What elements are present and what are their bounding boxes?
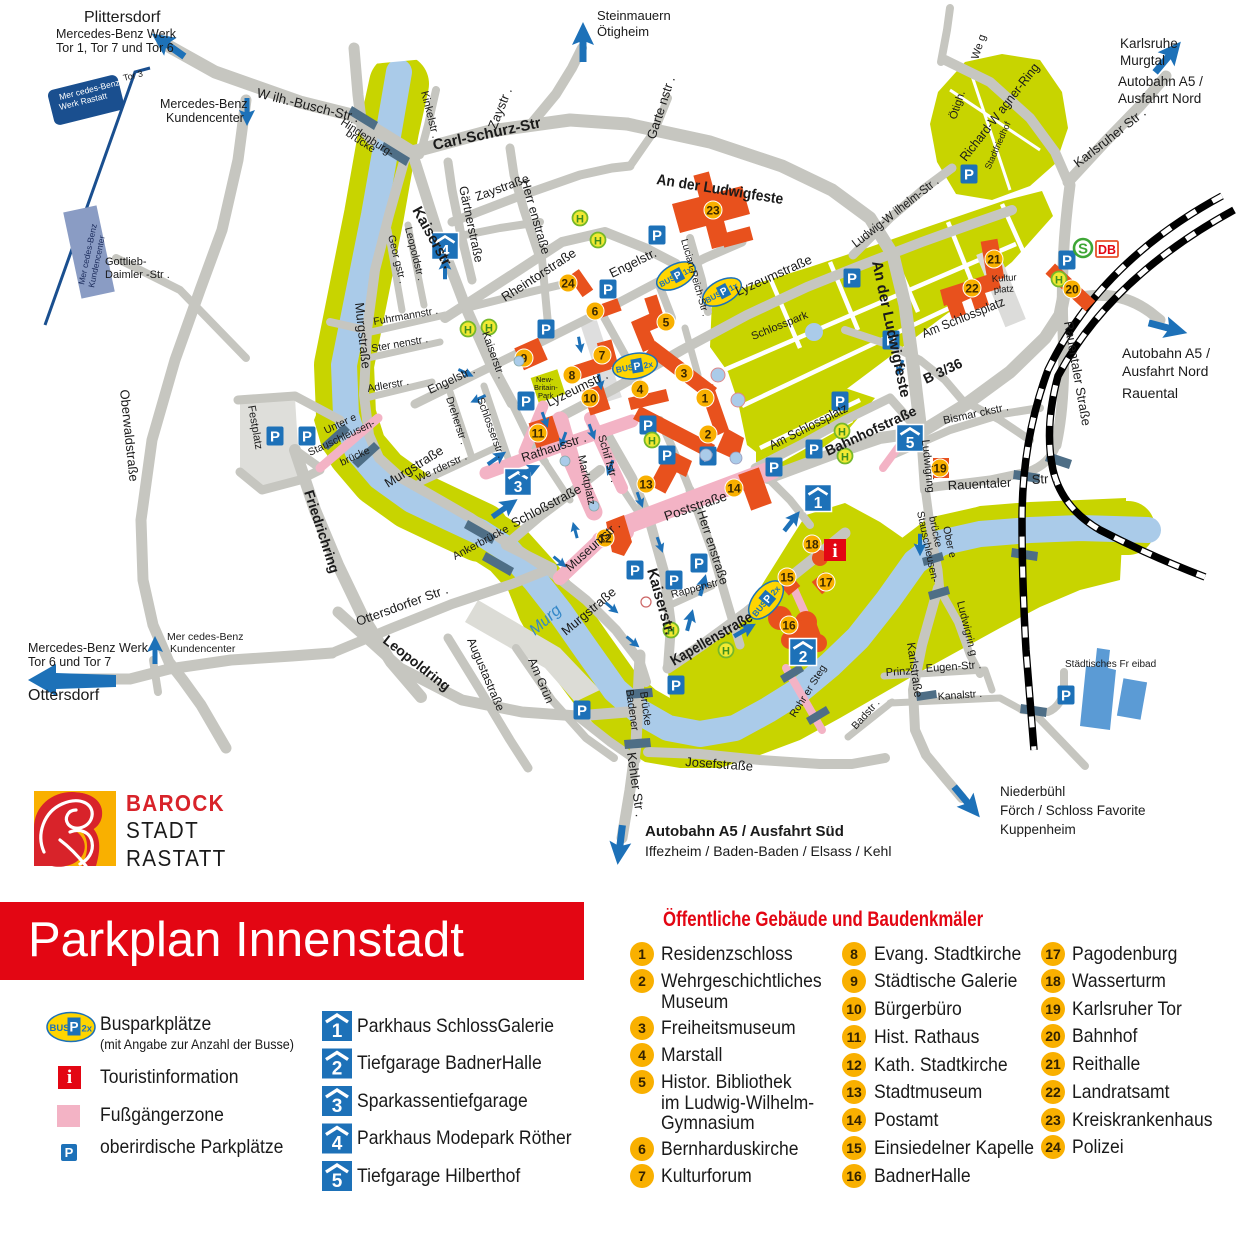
svg-text:Ötigheim: Ötigheim	[597, 24, 649, 39]
svg-text:Dreherstr .: Dreherstr .	[443, 395, 470, 446]
svg-text:16: 16	[782, 619, 796, 633]
svg-text:Iffezheim / Baden-Baden / Elsa: Iffezheim / Baden-Baden / Elsass / Kehl	[645, 843, 891, 859]
svg-text:Friedrichring: Friedrichring	[301, 488, 343, 575]
svg-text:11: 11	[532, 427, 545, 441]
svg-text:2: 2	[705, 428, 712, 442]
svg-text:Tor 1, Tor 7 und Tor 6: Tor 1, Tor 7 und Tor 6	[56, 41, 174, 55]
svg-text:3: 3	[514, 479, 523, 496]
svg-text:5: 5	[332, 1171, 343, 1192]
svg-text:Daimler -Str .: Daimler -Str .	[105, 269, 170, 281]
svg-text:Städtisches Fr eibad: Städtisches Fr eibad	[1065, 659, 1156, 670]
svg-text:Steinmauern: Steinmauern	[597, 8, 671, 23]
svg-text:Autobahn A5 /: Autobahn A5 /	[1122, 345, 1210, 361]
svg-text:platz: platz	[993, 284, 1014, 296]
svg-text:Kuppenheim: Kuppenheim	[1000, 822, 1076, 837]
svg-text:Tor 6 und Tor 7: Tor 6 und Tor 7	[28, 655, 111, 669]
svg-text:Murgtal: Murgtal	[1120, 53, 1165, 68]
svg-text:Park: Park	[538, 391, 554, 400]
svg-text:3: 3	[332, 1096, 343, 1117]
svg-text:20: 20	[1065, 283, 1079, 297]
svg-text:2: 2	[799, 649, 808, 666]
svg-text:6: 6	[592, 305, 599, 319]
svg-text:10: 10	[583, 392, 597, 406]
svg-text:Ausfahrt Nord: Ausfahrt Nord	[1122, 363, 1208, 379]
svg-text:Ottersdorf: Ottersdorf	[28, 687, 100, 704]
svg-text:2: 2	[332, 1059, 343, 1080]
svg-text:Rauentaler: Rauentaler	[947, 475, 1012, 493]
svg-text:i: i	[832, 541, 837, 562]
svg-text:Engelstr.: Engelstr.	[607, 245, 659, 281]
svg-text:Karlsruher Str .: Karlsruher Str .	[1071, 105, 1149, 171]
svg-text:Karlsruhe: Karlsruhe	[1120, 36, 1178, 51]
svg-text:21: 21	[987, 253, 1001, 267]
svg-text:2x: 2x	[643, 359, 654, 371]
svg-text:Oberwaldstraße: Oberwaldstraße	[117, 389, 142, 483]
svg-text:S: S	[1078, 241, 1088, 258]
svg-text:P: P	[70, 1020, 79, 1035]
svg-text:24: 24	[561, 277, 575, 291]
svg-text:Mer cedes-Benz: Mer cedes-Benz	[167, 631, 243, 643]
svg-text:Förch / Schloss Favorite: Förch / Schloss Favorite	[1000, 803, 1146, 818]
svg-text:Str .: Str .	[1031, 471, 1056, 487]
svg-text:1: 1	[814, 495, 823, 512]
svg-text:2x: 2x	[82, 1024, 93, 1035]
svg-text:Kundencenter: Kundencenter	[170, 643, 236, 655]
svg-text:Tor 3: Tor 3	[122, 68, 144, 83]
svg-text:4: 4	[637, 383, 644, 397]
svg-text:22: 22	[965, 282, 979, 296]
svg-text:3: 3	[681, 367, 688, 381]
svg-text:Kundencenter: Kundencenter	[166, 111, 244, 125]
svg-text:Herr enstraße: Herr enstraße	[694, 509, 731, 587]
svg-text:5: 5	[663, 316, 670, 330]
svg-text:17: 17	[819, 576, 833, 590]
svg-text:Rauental: Rauental	[1122, 385, 1178, 401]
svg-text:Niederbühl: Niederbühl	[1000, 784, 1065, 799]
svg-text:5: 5	[906, 435, 915, 452]
svg-text:15: 15	[780, 571, 794, 585]
svg-text:Plittersdorf: Plittersdorf	[84, 9, 161, 26]
svg-text:18: 18	[805, 538, 819, 552]
svg-text:23: 23	[706, 204, 720, 218]
svg-text:Mercedes-Benz: Mercedes-Benz	[160, 97, 248, 111]
svg-text:Autobahn A5 / Ausfahrt Süd: Autobahn A5 / Ausfahrt Süd	[645, 823, 844, 840]
svg-text:Ausfahrt Nord: Ausfahrt Nord	[1118, 91, 1201, 106]
svg-text:We g: We g	[969, 33, 988, 61]
svg-text:7: 7	[599, 349, 606, 363]
svg-text:BUS: BUS	[50, 1023, 70, 1034]
svg-text:Gottlieb-: Gottlieb-	[105, 256, 147, 268]
svg-text:13: 13	[639, 478, 653, 492]
svg-text:14: 14	[727, 482, 741, 496]
svg-text:DB: DB	[1098, 243, 1116, 257]
svg-text:1: 1	[332, 1021, 343, 1042]
svg-text:1: 1	[702, 392, 709, 406]
svg-text:4: 4	[332, 1134, 343, 1155]
svg-text:Mercedes-Benz Werk: Mercedes-Benz Werk	[28, 641, 149, 655]
svg-text:Mercedes-Benz Werk: Mercedes-Benz Werk	[56, 27, 177, 41]
svg-text:Autobahn A5 /: Autobahn A5 /	[1118, 74, 1203, 89]
